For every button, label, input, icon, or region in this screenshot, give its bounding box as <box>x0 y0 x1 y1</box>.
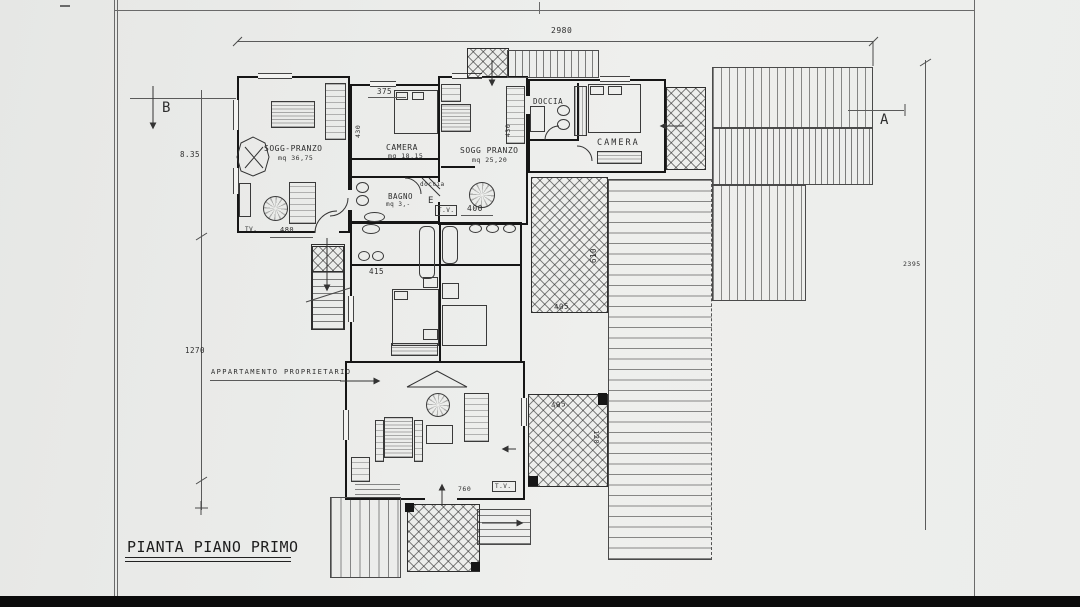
section-marker-a: A <box>880 113 889 127</box>
room-label: BAGNO <box>388 193 413 201</box>
dim-value: 405 <box>554 302 570 311</box>
room-label: CAMERA <box>386 144 418 152</box>
room-label: SOGG PRANZO <box>460 147 518 155</box>
dim-value: 760 <box>458 486 471 493</box>
apartment-note: APPARTAMENTO PROPRIETARIO <box>211 369 351 376</box>
dim-value: 415 <box>369 268 384 276</box>
dim-value: 400 <box>467 205 483 213</box>
marker-e: E <box>428 197 434 206</box>
dim-value: 120 <box>592 430 599 444</box>
dim-value: 480 <box>280 227 294 234</box>
room-label: SOGG-PRANZO <box>264 145 322 153</box>
tv-label: TV. <box>245 227 257 233</box>
tv-label: T.V. <box>495 484 511 490</box>
section-marker-b: B <box>162 101 171 115</box>
dim-value: 610 <box>590 248 598 263</box>
dim-value: 2980 <box>551 27 572 35</box>
floor-plan-sheet: PIANTA PIANO PRIMO APPARTAMENTO PROPRIET… <box>0 0 1080 607</box>
room-area: mq 36,75 <box>278 155 313 162</box>
dim-value: 430 <box>355 125 362 138</box>
linework-overlay <box>0 0 1080 607</box>
room-label: DOCCIA <box>533 98 563 106</box>
room-area: mq 3,- <box>386 202 411 208</box>
dim-value: 430 <box>505 124 512 137</box>
dim-value: 375 <box>377 88 392 96</box>
page-title: PIANTA PIANO PRIMO <box>127 540 299 555</box>
dim-value: 8.35 <box>180 151 200 159</box>
room-area: mq 18,15 <box>388 153 423 160</box>
room-note: doccia <box>420 182 445 188</box>
room-area: mq 25,20 <box>472 157 507 164</box>
dim-value: 405 <box>551 400 567 410</box>
dim-value: 2395 <box>903 261 921 268</box>
tv-label: T.V. <box>438 208 454 214</box>
room-label: CAMERA <box>597 139 640 148</box>
dim-value: 1270 <box>185 347 205 355</box>
